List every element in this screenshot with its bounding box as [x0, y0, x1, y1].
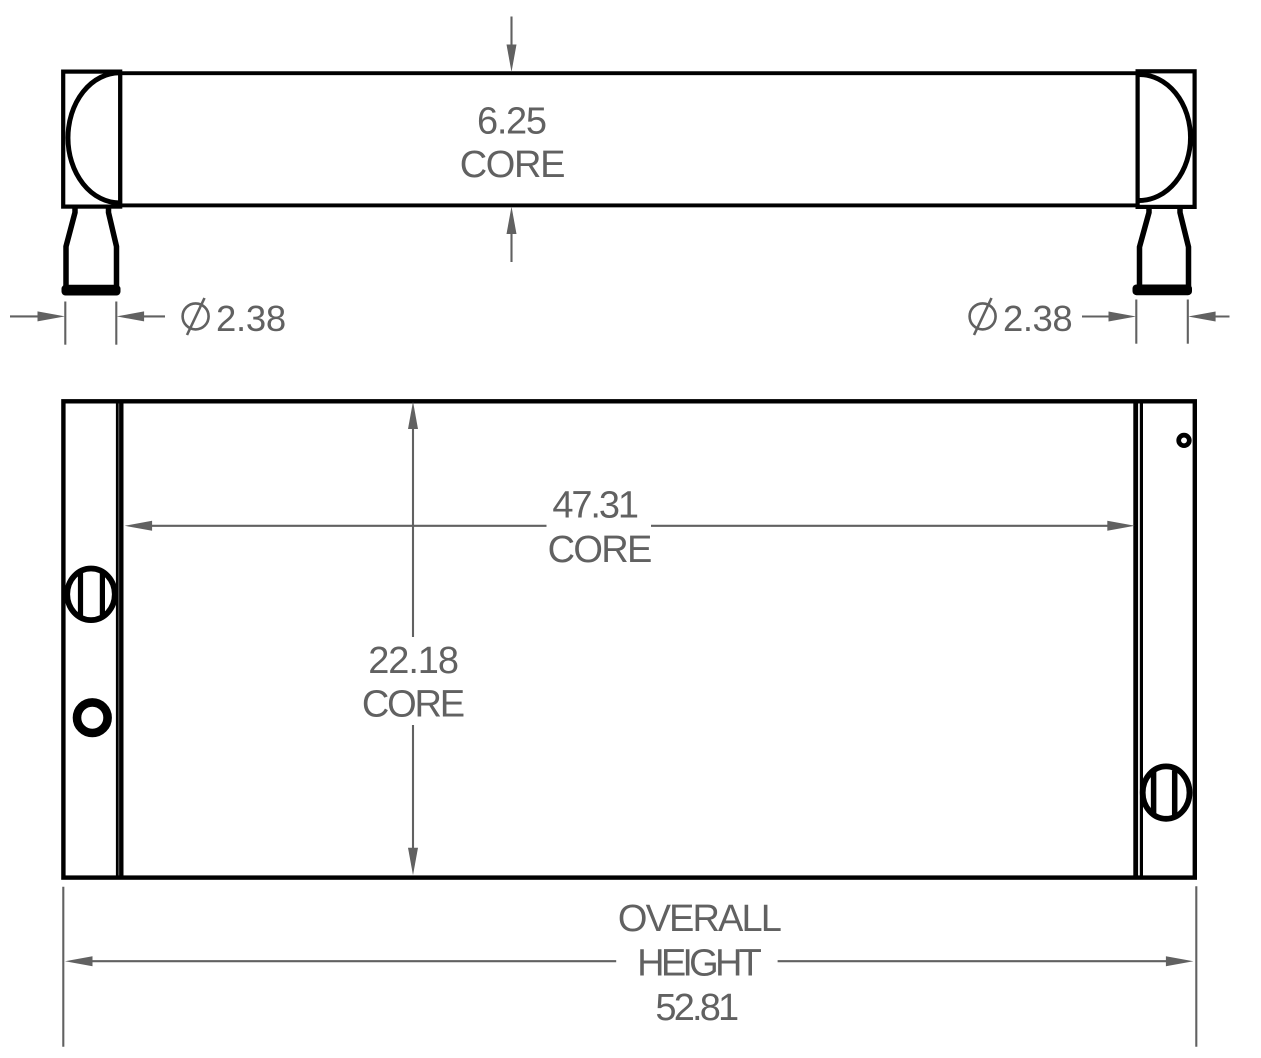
svg-text:52.81: 52.81	[655, 987, 739, 1029]
svg-text:HEIGHT: HEIGHT	[637, 943, 762, 985]
svg-text:6.25: 6.25	[477, 101, 547, 143]
svg-text:47.31: 47.31	[552, 485, 639, 527]
svg-text:CORE: CORE	[362, 683, 465, 725]
svg-text:CORE: CORE	[460, 144, 566, 186]
svg-text:CORE: CORE	[548, 529, 653, 571]
svg-text:OVERALL: OVERALL	[618, 898, 782, 940]
svg-text:2.38: 2.38	[1003, 298, 1073, 339]
svg-text:22.18: 22.18	[368, 640, 459, 682]
svg-text:2.38: 2.38	[216, 298, 286, 339]
